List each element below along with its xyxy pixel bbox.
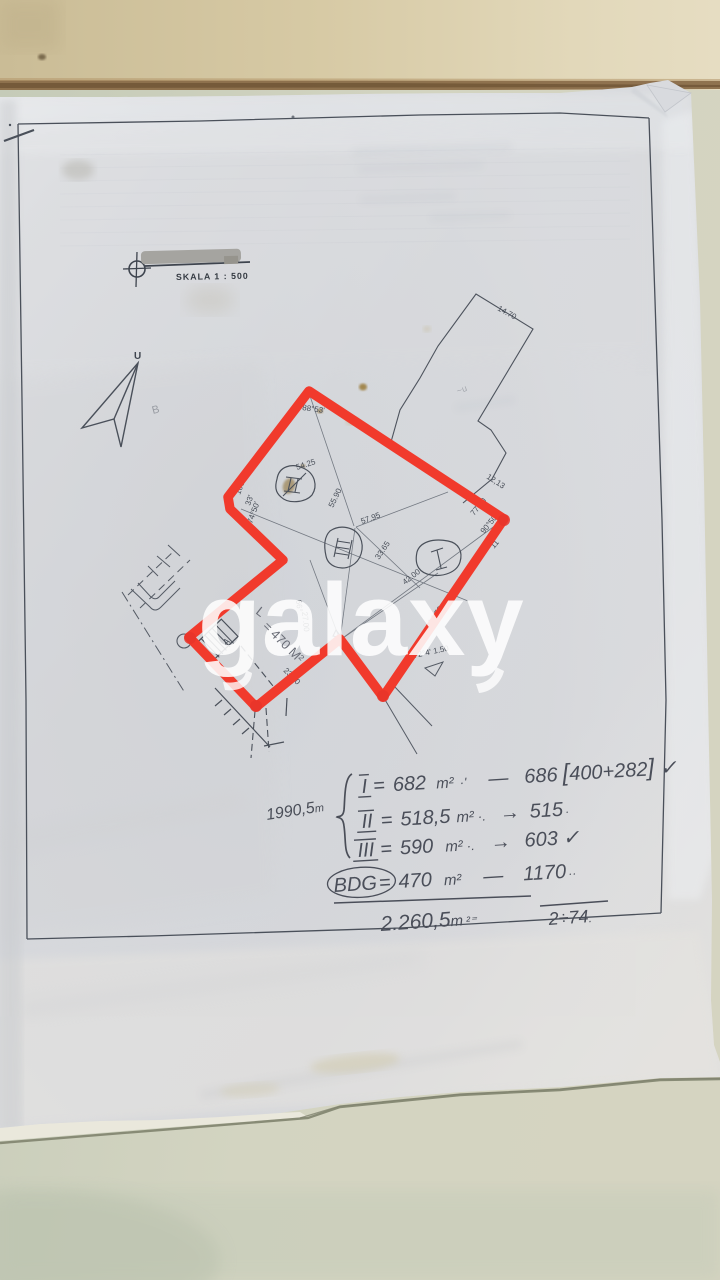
svg-text:U: U bbox=[134, 351, 141, 362]
svg-text:galaxy: galaxy bbox=[198, 562, 525, 677]
svg-text:2÷74.: 2÷74. bbox=[547, 906, 593, 929]
svg-text:SKALA 1 : 500: SKALA 1 : 500 bbox=[176, 271, 249, 282]
